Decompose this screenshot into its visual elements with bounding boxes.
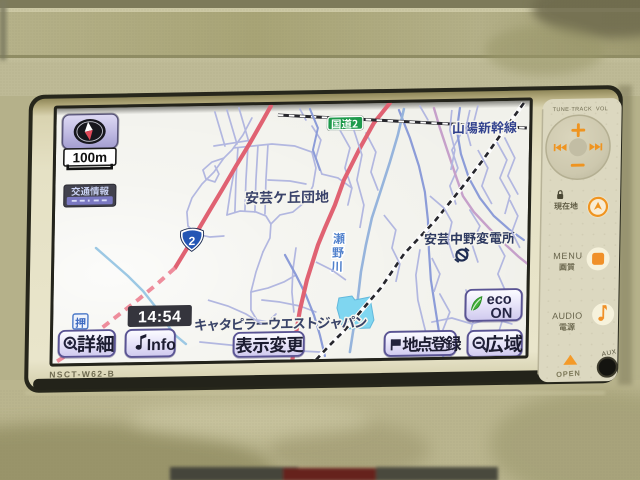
svg-text:14:54: 14:54: [138, 309, 182, 327]
svg-text:2: 2: [188, 234, 195, 248]
svg-text:Info: Info: [147, 337, 177, 354]
svg-text:MENU: MENU: [553, 251, 583, 262]
svg-text:TUNE·TRACK VOL: TUNE·TRACK VOL: [553, 106, 609, 113]
svg-text:AUDIO: AUDIO: [552, 311, 583, 322]
svg-text:OPEN: OPEN: [556, 368, 581, 379]
svg-text:ON: ON: [490, 306, 512, 322]
svg-text:NSCT-W62-B: NSCT-W62-B: [49, 369, 115, 380]
svg-text:100m: 100m: [72, 150, 107, 166]
